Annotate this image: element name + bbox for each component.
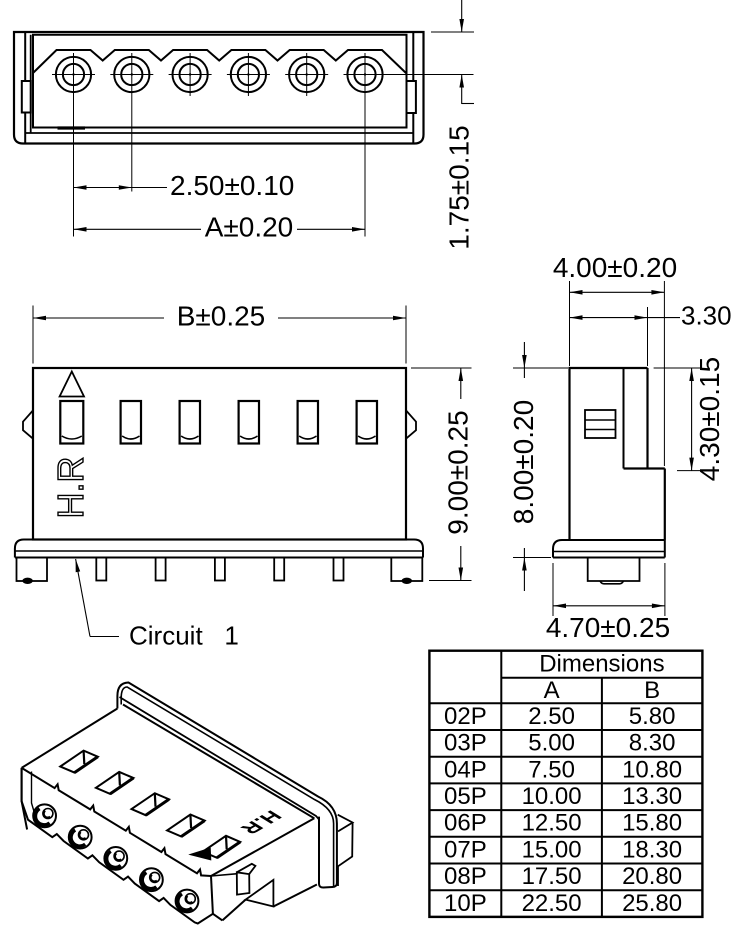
svg-text:2.50±0.10: 2.50±0.10 — [170, 170, 294, 201]
svg-text:1.75±0.15: 1.75±0.15 — [443, 125, 474, 249]
svg-text:02P: 02P — [444, 703, 487, 730]
svg-text:22.50: 22.50 — [522, 890, 582, 917]
svg-text:08P: 08P — [444, 863, 487, 890]
svg-text:15.00: 15.00 — [522, 836, 582, 863]
svg-text:2.50: 2.50 — [528, 703, 575, 730]
svg-text:4.00±0.20: 4.00±0.20 — [553, 252, 677, 283]
svg-text:10.80: 10.80 — [622, 756, 682, 783]
svg-text:06P: 06P — [444, 810, 487, 837]
svg-text:B: B — [644, 677, 660, 704]
svg-text:5.00: 5.00 — [528, 730, 575, 757]
svg-text:5.80: 5.80 — [629, 703, 676, 730]
svg-text:9.00±0.25: 9.00±0.25 — [442, 410, 473, 534]
svg-text:15.80: 15.80 — [622, 810, 682, 837]
svg-text:10P: 10P — [444, 890, 487, 917]
svg-text:7.50: 7.50 — [528, 756, 575, 783]
svg-text:04P: 04P — [444, 756, 487, 783]
svg-text:12.50: 12.50 — [522, 810, 582, 837]
svg-text:13.30: 13.30 — [622, 783, 682, 810]
svg-text:07P: 07P — [444, 836, 487, 863]
svg-text:03P: 03P — [444, 730, 487, 757]
svg-text:A: A — [544, 677, 560, 704]
svg-text:3.30: 3.30 — [681, 300, 732, 330]
svg-text:20.80: 20.80 — [622, 863, 682, 890]
svg-text:8.30: 8.30 — [629, 730, 676, 757]
svg-text:A±0.20: A±0.20 — [205, 212, 294, 243]
svg-text:H.R: H.R — [50, 457, 91, 519]
svg-text:4.30±0.15: 4.30±0.15 — [694, 357, 725, 481]
svg-text:05P: 05P — [444, 783, 487, 810]
svg-text:17.50: 17.50 — [522, 863, 582, 890]
svg-text:10.00: 10.00 — [522, 783, 582, 810]
svg-text:B±0.25: B±0.25 — [177, 300, 266, 331]
svg-text:18.30: 18.30 — [622, 836, 682, 863]
svg-text:25.80: 25.80 — [622, 890, 682, 917]
svg-text:Circuit 1: Circuit 1 — [129, 620, 239, 650]
svg-text:4.70±0.25: 4.70±0.25 — [546, 612, 670, 643]
svg-text:8.00±0.20: 8.00±0.20 — [508, 400, 539, 524]
svg-text:Dimensions: Dimensions — [539, 651, 664, 678]
